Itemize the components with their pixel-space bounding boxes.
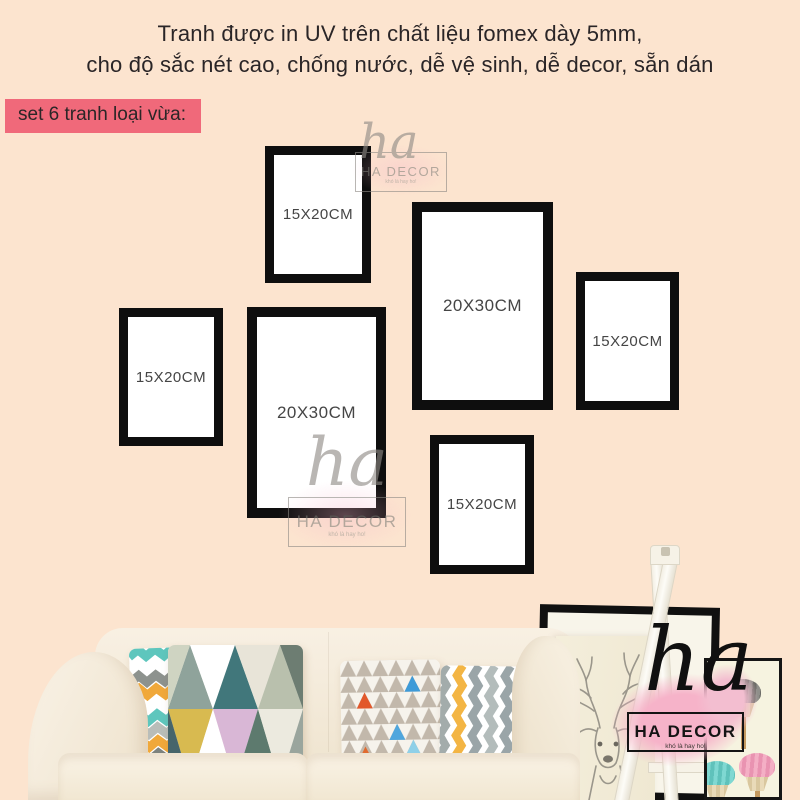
frame-top-center: 20X30CM [412, 202, 553, 410]
frame-center: 20X30CM [247, 307, 386, 518]
frame-matte: 20X30CM [422, 212, 543, 400]
cupcake-stick [755, 791, 760, 800]
product-image: Tranh được in UV trên chất liệu fomex dà… [0, 0, 800, 800]
frame-matte: 20X30CM [257, 317, 376, 508]
sofa-seat-cushion-right [306, 753, 580, 800]
frame-size-label: 15X20CM [592, 333, 662, 350]
frame-matte: 15X20CM [585, 281, 670, 401]
frame-right: 15X20CM [576, 272, 679, 410]
cupcake-frosting [704, 761, 735, 787]
header-line-1: Tranh được in UV trên chất liệu fomex dà… [0, 18, 800, 49]
cupcake-teal-icon [704, 761, 735, 800]
frame-matte: 15X20CM [128, 317, 214, 437]
frame-size-label: 20X30CM [443, 296, 522, 316]
frame-matte: 15X20CM [274, 155, 362, 274]
logo-tagline: khó là hay ho! [629, 743, 742, 750]
cupcake-liner [744, 777, 770, 791]
set-badge: set 6 tranh loại vừa: [5, 99, 201, 133]
frame-size-label: 15X20CM [283, 206, 353, 223]
watermark-tagline: khó là hay ho! [289, 532, 405, 538]
frame-left: 15X20CM [119, 308, 223, 446]
header-line-2: cho độ sắc nét cao, chống nước, dễ vệ si… [0, 49, 800, 80]
frame-size-label: 15X20CM [447, 496, 517, 513]
frame-size-label: 20X30CM [277, 403, 356, 423]
frame-size-label: 15X20CM [136, 369, 206, 386]
frame-bottom-center: 15X20CM [430, 435, 534, 574]
frame-matte: 15X20CM [439, 444, 525, 565]
sofa-seat-cushion-left [58, 753, 308, 800]
easel-clamp-knob [661, 547, 670, 556]
brand-logo: ha HA DECOR khó là hay ho! [598, 612, 794, 764]
logo-script-ha: ha [644, 616, 753, 704]
header-text: Tranh được in UV trên chất liệu fomex dà… [0, 18, 800, 80]
logo-brand-name: HA DECOR [629, 722, 742, 742]
frame-top-left: 15X20CM [265, 146, 371, 283]
cupcake-liner [704, 785, 730, 799]
logo-box: HA DECOR khó là hay ho! [627, 712, 744, 752]
